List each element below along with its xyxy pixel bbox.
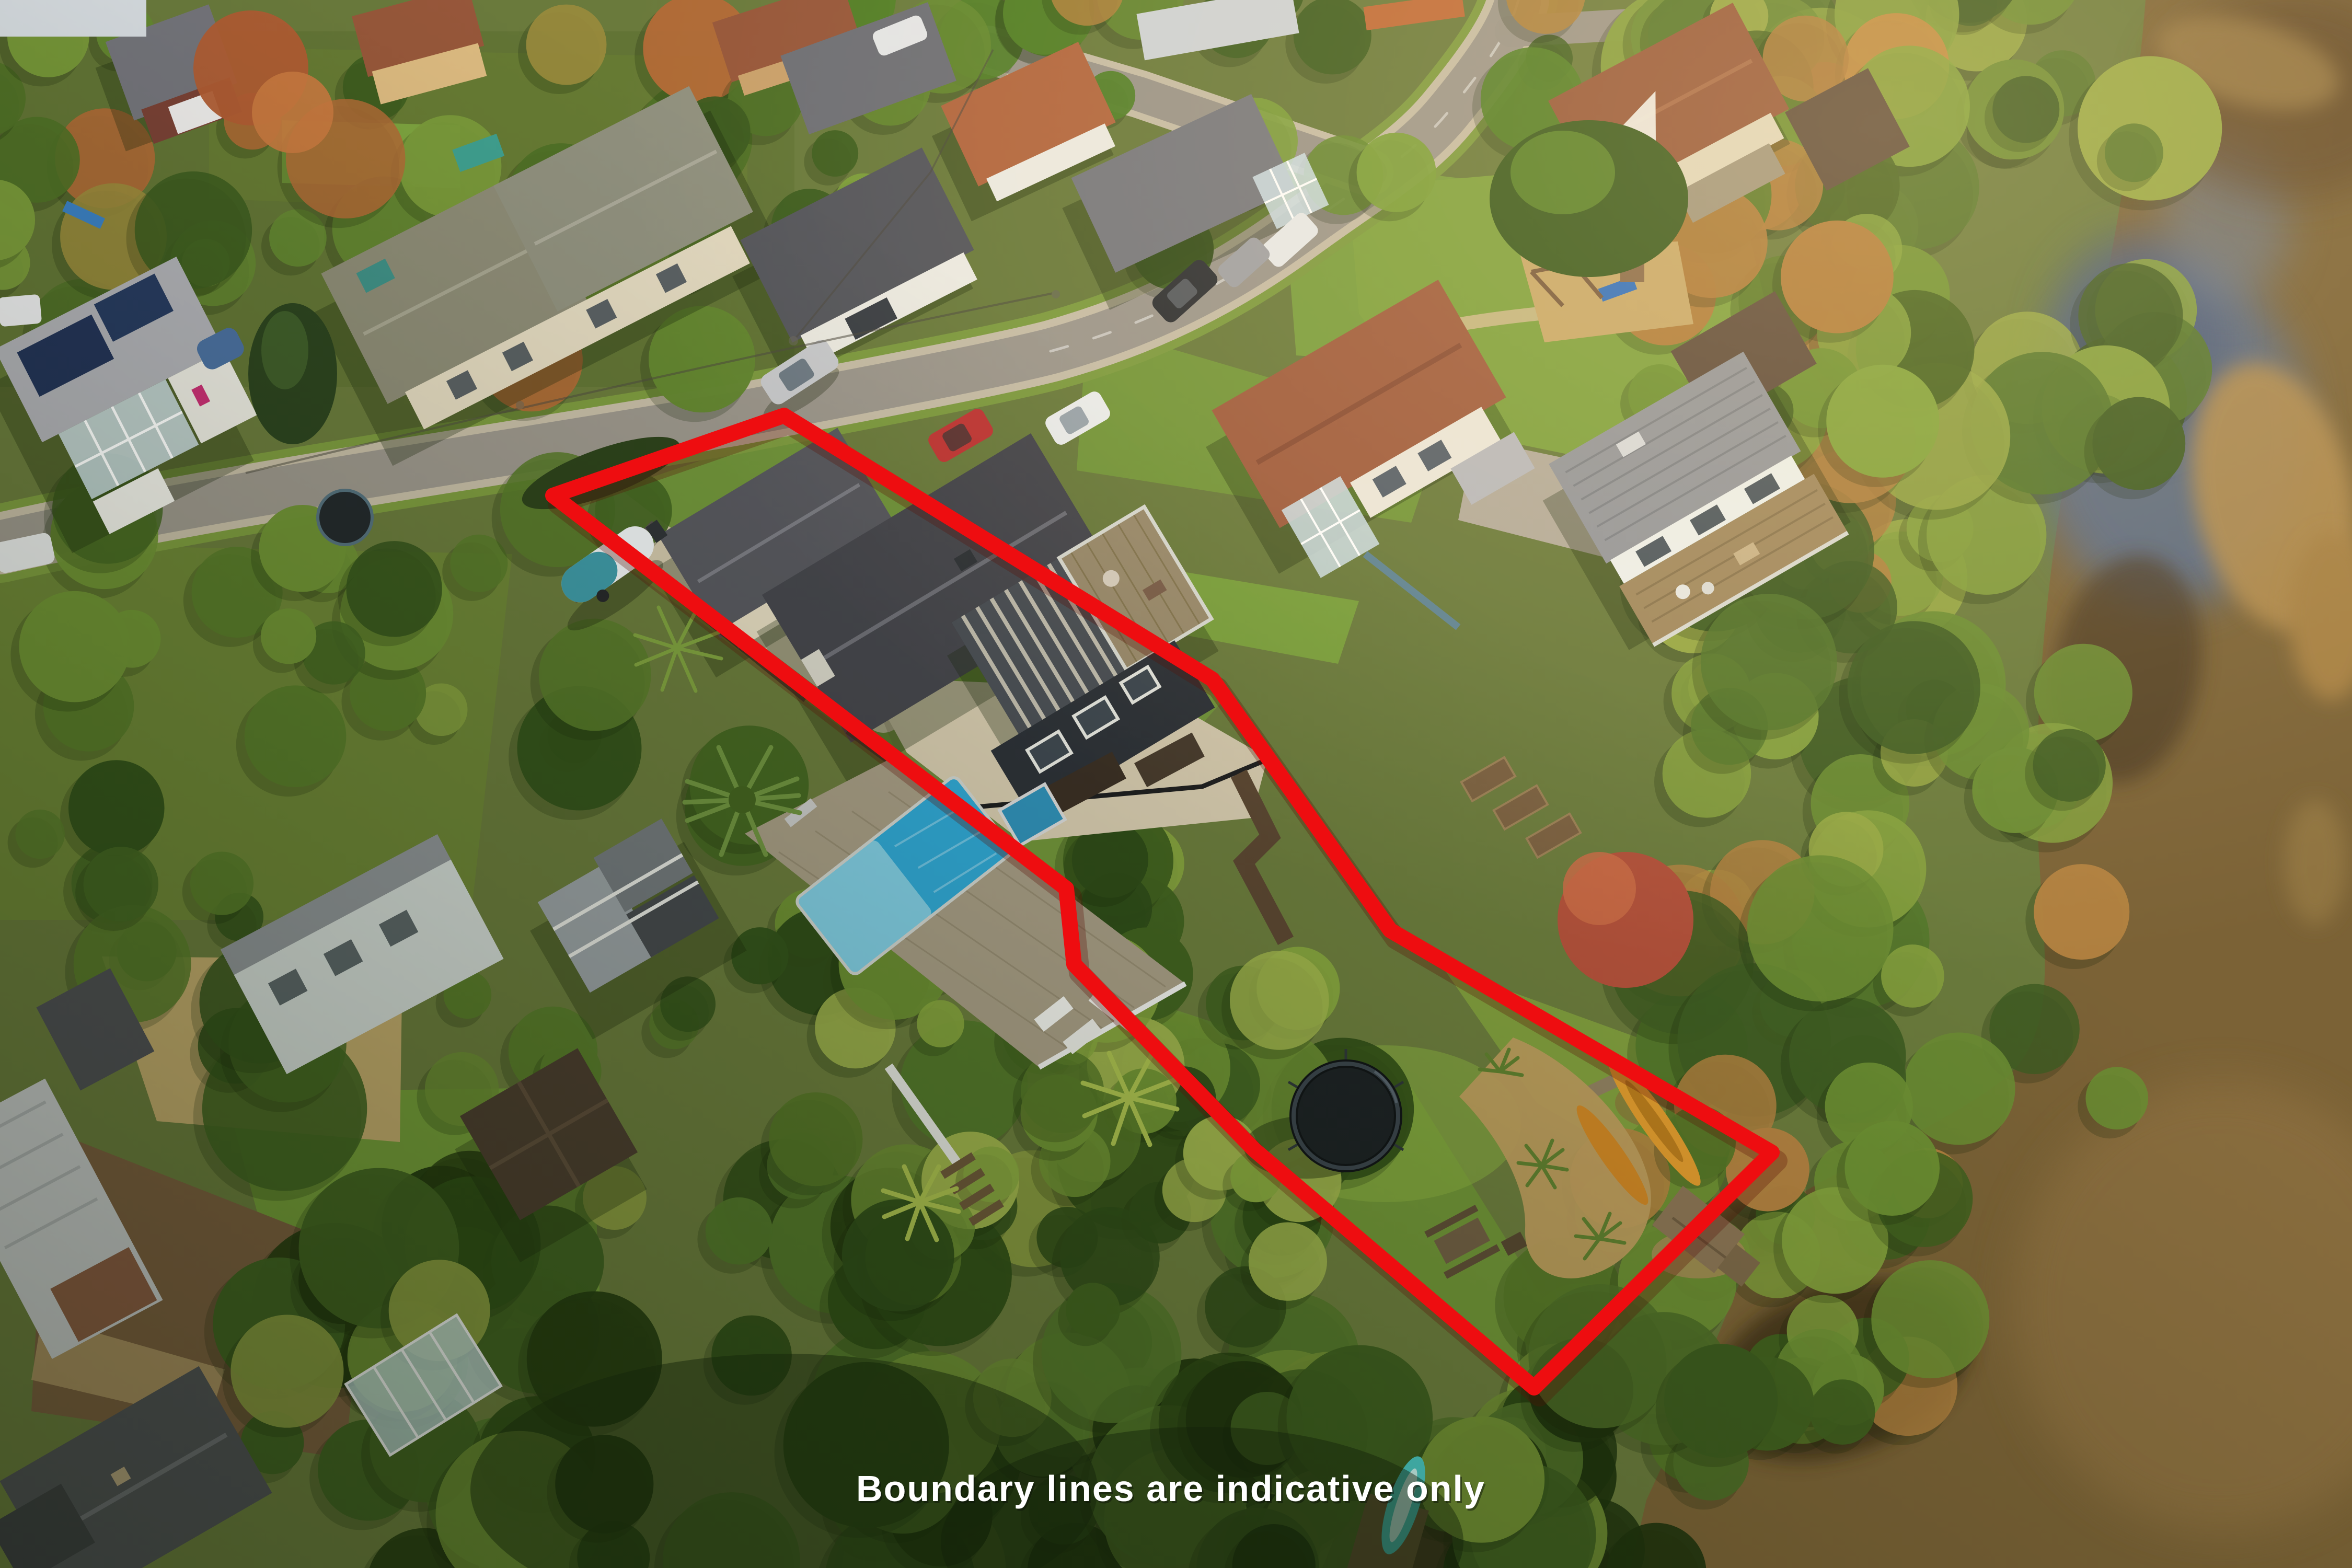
aerial-photo: Boundary lines are indicative only Bound… <box>0 0 2352 1568</box>
aerial-photo-canvas: Boundary lines are indicative only Bound… <box>0 0 2352 1568</box>
shadow-overlay <box>0 0 2352 1568</box>
caption-text: Boundary lines are indicative only <box>856 1468 1485 1509</box>
photo-caption: Boundary lines are indicative only Bound… <box>856 1468 1487 1511</box>
